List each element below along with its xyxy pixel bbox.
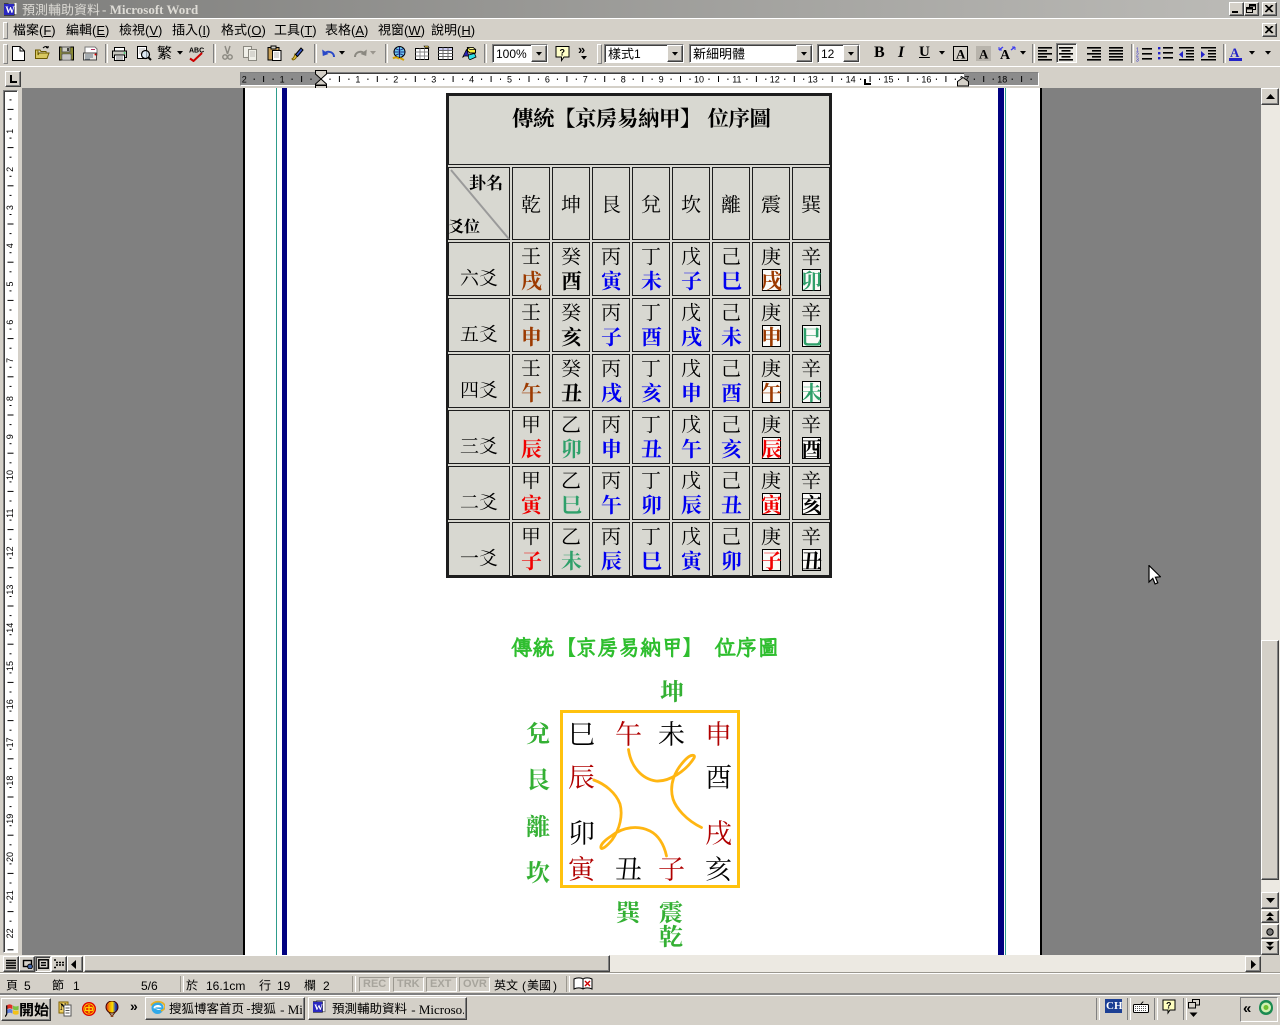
- svg-text:14: 14: [5, 623, 15, 633]
- svg-text:A: A: [956, 47, 966, 62]
- svg-text:12: 12: [770, 75, 780, 85]
- svg-text:3: 3: [5, 205, 15, 210]
- svg-text:16: 16: [921, 75, 931, 85]
- svg-text:6: 6: [5, 320, 15, 325]
- svg-text:12: 12: [5, 546, 15, 556]
- svg-text:2: 2: [5, 167, 15, 172]
- svg-text:4: 4: [469, 75, 474, 85]
- svg-text:14: 14: [846, 75, 856, 85]
- svg-text:10: 10: [5, 470, 15, 480]
- svg-text:2: 2: [1136, 53, 1139, 59]
- svg-text:6: 6: [545, 75, 550, 85]
- svg-text:?: ?: [560, 48, 566, 58]
- svg-text:?: ?: [1166, 1001, 1172, 1011]
- svg-text:18: 18: [997, 75, 1007, 85]
- svg-text:5: 5: [5, 281, 15, 286]
- svg-text:A: A: [1230, 45, 1240, 60]
- svg-text:ABC: ABC: [189, 48, 204, 55]
- svg-text:1: 1: [5, 129, 15, 134]
- svg-text:22: 22: [5, 928, 15, 938]
- svg-text:15: 15: [883, 75, 893, 85]
- svg-text:13: 13: [5, 585, 15, 595]
- svg-text:8: 8: [5, 396, 15, 401]
- svg-text:18: 18: [5, 776, 15, 786]
- svg-text:21: 21: [5, 890, 15, 900]
- svg-text:1: 1: [1136, 48, 1139, 54]
- svg-text:5: 5: [507, 75, 512, 85]
- svg-text:4: 4: [5, 243, 15, 248]
- svg-text:3: 3: [431, 75, 436, 85]
- svg-text:7: 7: [583, 75, 588, 85]
- svg-text:13: 13: [808, 75, 818, 85]
- svg-text:20: 20: [5, 852, 15, 862]
- svg-text:19: 19: [5, 814, 15, 824]
- svg-text:9: 9: [659, 75, 664, 85]
- svg-text:7: 7: [5, 358, 15, 363]
- svg-text:1: 1: [280, 75, 285, 85]
- svg-text:W: W: [5, 6, 15, 16]
- svg-text:17: 17: [5, 737, 15, 747]
- svg-text:A: A: [979, 47, 989, 62]
- svg-text:16: 16: [5, 699, 15, 709]
- svg-text:11: 11: [732, 75, 741, 85]
- svg-text:15: 15: [5, 661, 15, 671]
- svg-text:9: 9: [5, 434, 15, 439]
- svg-text:10: 10: [694, 75, 704, 85]
- svg-text:A: A: [1000, 48, 1011, 62]
- svg-text:3: 3: [1136, 58, 1139, 63]
- svg-text:2: 2: [393, 75, 398, 85]
- svg-text:N: N: [60, 1002, 67, 1012]
- svg-text:2: 2: [242, 75, 247, 85]
- svg-text:W: W: [314, 1002, 323, 1012]
- svg-text:17: 17: [959, 75, 969, 85]
- svg-text:1: 1: [355, 75, 360, 85]
- svg-text:8: 8: [621, 75, 626, 85]
- svg-text:11: 11: [5, 509, 15, 518]
